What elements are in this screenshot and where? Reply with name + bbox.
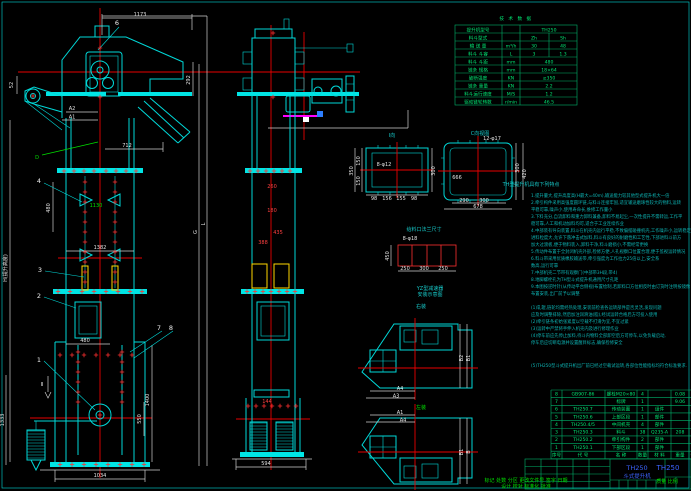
bom-cell: Q235-A [651,430,669,436]
tech-data-table: 技 术 数 据 提升机型号TH250料斗型式ZhSh输 送 量m³/h3048料… [455,15,577,105]
bom-cell: 38 [640,430,646,436]
dim-550: 550 [137,414,143,424]
dim-p2-b: B [466,450,472,454]
dim-480-boot: 480 [80,338,90,344]
bolt-mark [120,360,124,364]
bom-cell: 1 [641,399,644,405]
tech-label: 输 送 量 [470,42,487,49]
bom-cell: TH250.4/5 [570,422,595,428]
bolt-marks-and-hatches [27,31,298,467]
bom-cell: 5 [555,414,558,420]
dim-top-width: 1173 [134,12,147,18]
dim-f1-150b: 150 [356,176,362,186]
dim-f1-150a: 150 [356,156,362,166]
bom-cell: 部件 [655,444,665,451]
dim-a2: A2 [69,106,76,112]
tech-label: 料斗 斗容 [468,50,488,57]
bom-cell: 牵引构件 [612,436,631,443]
bom-cell: 中间机壳 [612,421,631,428]
bom-cell: 6 [555,407,558,413]
bom-cell: 标牌 [616,398,626,405]
bom-header-cell: 名 称 [616,452,627,459]
bolt-mark [76,350,80,354]
dim-1400: 1400 [145,394,151,407]
feed-450: 450 [385,251,391,261]
feature-line: 进料粒度大,允许下落冲击式加料,料斗有良好的耐磨性和工艺性,下部进料斗前方 [531,234,682,241]
bom-header-cell: 代 号 [578,452,589,459]
tech-unit: L [510,51,513,57]
bolt-mark [70,353,74,357]
tech-value: TH250 [540,27,556,33]
bolt-mark [58,353,62,357]
tech-unit: m³/h [506,43,517,49]
bolt-mark [83,260,87,264]
bolt-mark [113,270,117,274]
dim-1130: 1130 [90,203,103,209]
bom-cell: TH250.1 [572,445,592,451]
balloon-4: 4 [37,177,41,185]
dim-height-label: H(提升高度) [2,254,9,282]
dim-p2-a4: A4 [400,418,407,424]
bom-cell: 部件 [655,436,665,443]
tech-value-2: Sh [560,35,566,41]
dim-f2-290: 290 [459,198,469,204]
left-mount-label: 左装 [416,404,426,411]
balloon-8: 8 [169,324,173,332]
bolt-mark [254,404,258,408]
bolt-mark [76,360,80,364]
detail-c-holes: 12-φ17 [483,136,501,142]
bolt-mark [286,404,290,408]
bolt-mark [113,230,117,234]
bolt-mark [83,220,87,224]
dim-1382: 1382 [94,245,107,251]
bom-cell: 部件 [655,413,665,420]
tech-value-1: 30 [531,43,537,49]
side-elevation-view: 594 260 180 435 388 144 [232,19,408,470]
dim-p2-a1: A1 [397,410,404,416]
front-view-dimensions: 1173 712 52 292 A2 A1 480 1130 1382 H(提升… [0,12,207,482]
bolt-mark [76,400,80,404]
feature-line: 1.提升量大,提升高度高(H最大=40m),输送能力较其他型式提升机大一倍 [531,192,670,199]
bolt-mark [83,280,87,284]
tech-value-2: 1.3 [559,51,566,57]
dim-f1-b1: 98 [371,196,377,202]
title-sig-row2: 设计 校对 标准化 批准 [501,483,551,490]
bom-header-cell: 序号 [552,452,562,459]
detail-view-i: I向 8-φ12 98 156 155 98 300 150 150 350 [349,132,437,202]
bom-cell: TH250.2 [572,437,592,443]
tech-value: 2.2 [545,83,552,89]
bolt-mark [98,413,102,417]
bom-cell: TH250.6 [572,414,592,420]
bolt-mark [113,260,117,264]
bom-cell: 4 [641,391,644,397]
title-product-model: TH250 [625,464,647,472]
tech-label: 料斗 斗距 [468,58,488,65]
bolt-mark [82,353,86,357]
bolt-mark [113,240,117,244]
drive-note-2: 安装示意图 [417,291,442,298]
bom-cell: TH250.3 [572,430,592,436]
tech-value: 1.2 [545,91,552,97]
title-drawing-no: TH250 [656,464,680,472]
feature-line: 应及时调整排除,然后加注润滑油(脂),经试运转合格后方可投入使用 [531,311,657,318]
tech-value: 46.5 [544,99,554,105]
dim-p1-a3: A3 [393,394,400,400]
dim-p1-a4: A4 [397,386,404,392]
bolt-mark [113,280,117,284]
bom-cell: 1 [641,414,644,420]
dim-388: 388 [258,240,268,246]
title-sig-row1: 标记 处数 分区 更改文件号 签字 日期 [485,477,568,484]
feature-line: (3)运转中严禁将手伸入机壳内及进行修理作业 [531,325,619,332]
tech-table-title: 技 术 数 据 [499,15,532,22]
detail-view-c: C向视图 12-φ17 666 290 300 678 300 420 [438,130,528,210]
dim-f1-b4: 98 [411,196,417,202]
feed-title: 给料口法兰尺寸 [406,226,441,233]
cad-canvas: 1173 712 52 292 A2 A1 480 1130 1382 H(提升… [0,0,691,491]
feature-line: 稳可靠,人工和机动加料均可,适合于工业连续作业 [531,220,625,227]
detail-i-holes: 8-φ12 [377,162,392,168]
dim-f1-350: 350 [349,166,355,176]
dim-f1-b2: 156 [382,196,392,202]
tech-label: 驱动链轮转数 [464,98,492,105]
feature-line: 平稳可靠,噪声小,使用寿命长,维修工作量小 [531,206,613,213]
tech-unit: KN [508,75,514,81]
tech-value-2: 48 [560,43,566,49]
bom-cell: 1 [641,445,644,451]
bolt-mark [83,180,87,184]
bom-header-cell: 材 料 [654,452,665,459]
balloon-1: 1 [37,356,41,364]
bom-cell: 传动装置 [612,406,631,413]
bom-cell: 料斗 [616,429,626,436]
tech-label: 提升机型号 [467,26,490,33]
dim-letter-g: G [193,230,199,234]
bolt-mark [113,200,117,204]
balloon-7: 7 [157,324,161,332]
tech-unit: mm [507,68,516,73]
bom-cell: 部件 [655,421,665,428]
bom-table: 8GB907-86螺栓M20×8040.087标牌19.066TH250.7传动… [551,390,691,459]
bolt-mark [76,370,80,374]
tech-unit: r/min [505,99,517,105]
bom-cell: 4 [641,422,644,428]
head-plan-left-mount: A1 A4 B1 B [358,404,478,490]
feature-line: 数高,运行可靠 [531,262,559,269]
dim-f2-678: 678 [473,204,483,210]
bolt-mark [76,390,80,394]
tech-value: ≥350 [543,75,556,81]
dim-f1-b3: 155 [396,196,406,202]
bom-cell: 0.08 [675,391,685,397]
bom-cell: 8 [555,391,558,397]
tech-unit: M/S [507,91,516,97]
bom-cell: 上部区段 [612,413,631,420]
bom-cell: 9.06 [675,399,685,405]
feed-b1: 250 [400,266,410,272]
dim-260: 260 [267,184,277,190]
tech-unit: KN [508,83,514,89]
dim-52: 52 [9,82,15,88]
drive-note-1: YZ型减速器 [416,285,443,292]
bolt-mark [120,390,124,394]
features-text-block: TH型提升机具有下列特点 1.提升量大,提升高度高(H最大=40m),输送能力较… [502,181,691,369]
bolt-mark [113,180,117,184]
dim-292: 292 [186,75,192,85]
white-marker [303,117,309,122]
detail-i-title: I向 [389,132,395,139]
feature-line: 停车后应切断电源并设置醒目标志,确保检修安全 [531,339,623,346]
feature-line: (1)轧辊,链轮均需经热处理,安装前检查各运转部件是否灵活,发现问题 [531,304,662,311]
balloon-6: 6 [115,19,119,27]
bom-cell: 1 [641,407,644,413]
drive-marker [317,111,323,117]
bolt-mark [120,400,124,404]
tech-label: 链条 重量 [468,82,488,89]
balloon-2: 2 [37,292,41,300]
dim-f1-300: 300 [431,166,437,176]
dim-letter-l: L [201,222,207,225]
tech-value-1: Zh [531,35,537,41]
bolt-mark [94,353,98,357]
bolt-mark [106,353,110,357]
drive-notes: YZ型减速器 安装示意图 右装 左装 [416,285,443,411]
dim-chute: 712 [122,143,132,149]
bolt-mark [76,380,80,384]
feature-line: 8.地脚螺栓孔为TH型斗式提升机通用尺寸孔距 [531,276,619,283]
bom-cell: GB907-86 [572,391,595,397]
dim-a1: A1 [69,115,76,121]
bom-header-cell: 数量 [638,452,648,459]
right-mount-label: 右装 [416,303,426,310]
tech-label: 破断强度 [469,74,488,81]
bom-header-cell: 重量 [675,452,685,459]
bolt-mark [83,270,87,274]
dim-p1-b1: B1 [466,355,472,362]
feature-line: 布置安装,出厂前予以调整 [531,290,580,297]
bom-cell: 螺栓M20×80 [607,390,636,397]
title-product-name: 斗式提升机 [623,472,651,480]
bom-cell: 3 [555,430,558,436]
bolt-mark [278,404,282,408]
tech-unit: mm [507,60,516,65]
dim-594: 594 [261,461,271,467]
bolt-mark [120,350,124,354]
tech-label: 料斗运行速度 [464,90,492,97]
tech-value: 480 [545,59,554,65]
bom-cell: 208 [676,430,685,436]
feed-b3: 250 [438,266,448,272]
dim-1333: 1333 [0,414,6,427]
head-plan-right-mount: A4 A3 B2 B1 [358,318,478,400]
feature-line: 9.本图按逆时针(从传动平台侧视)布置绘制,若卸料口方位相反时由订货时注明按镜像 [531,283,691,290]
bolt-mark [83,240,87,244]
bolt-mark [83,210,87,214]
dim-f2-666: 666 [452,175,462,181]
dim-base: 1034 [94,473,107,479]
feature-line: (4)停车前应先停止加料,待斗内物料全部卸空后方可停车,以免负载启动, [531,332,666,339]
title-right-small: 质量 比例 [656,478,678,485]
feature-line: 6.料斗带采用优质橡胶输送带,牵引强度为工作拉力25倍以上,安全系 [531,255,660,262]
features-title: TH型提升机具有下列特点 [502,181,560,188]
feature-line: 5.传动件布置于全封闭机壳外部,检修方便,人孔视察口位置合理,便于监视运转情况 [531,248,686,255]
bolt-mark [120,380,124,384]
feature-line: (2)牵引链条初始张紧度以空载不打滑为宜,不宜过紧 [531,318,629,325]
bom-cell: 组件 [655,406,665,413]
title-block: TH250 斗式提升机 TH250 标记 处数 分区 更改文件号 签字 日期 设… [485,459,691,490]
feature-line: 加大过渡板,便于物料装入,卸料干净,料斗磨损小,不需经常更换 [531,241,649,248]
bom-cell: 7 [555,399,558,405]
feature-line: (5)TH250型斗式提升机出厂前已经过空载试运转,各部位性能指标均符合标准要求… [531,362,687,369]
bom-cell: 2 [555,437,558,443]
section-marker: Ⅱ [41,382,43,388]
bolt-mark [83,200,87,204]
bom-cell: 2 [641,437,644,443]
bolt-mark [83,230,87,234]
tech-label: 料斗型式 [469,34,488,41]
dim-480-left: 480 [46,203,52,213]
tech-value: 18×64 [541,67,557,73]
bom-cell: 4 [555,422,558,428]
front-elevation-view [25,26,192,470]
bolt-mark [113,220,117,224]
feed-opening-detail: 给料口法兰尺寸 8-φ18 450 250 300 250 [385,226,456,272]
dim-435: 435 [273,230,283,236]
feature-line: 7.中部机壳二节带有观察门(中部带3H段,带4) [531,269,618,276]
feature-line: 3.下料充分,自流卸料和重力卸料兼备,卸料不易起尘,一次性提升不需转运,工作平 [531,213,683,220]
bolt-mark [113,190,117,194]
dim-p2-b1: B1 [459,449,465,456]
tech-label: 链条 规格 [468,66,488,73]
dim-f2-420: 420 [522,169,528,179]
balloon-d: D [35,155,39,161]
bom-cell: TH250.7 [572,407,592,413]
bolt-mark [271,31,275,35]
feed-b2: 300 [419,266,429,272]
feed-holes: 8-φ18 [403,236,418,242]
bom-cell: 1 [555,445,558,451]
dim-f2-r300: 300 [515,163,521,173]
bolt-mark [83,190,87,194]
bolt-mark [113,210,117,214]
dim-p1-b2: B2 [459,355,465,362]
bolt-mark [294,404,298,408]
dim-180: 180 [267,208,277,214]
tech-value-1: 3 [533,51,536,57]
feature-line: 4.中部装有导向装置,料斗在机壳内运行平稳,不致偏摆碰撞机壳,工作噪声小,运转稳… [531,227,691,234]
bolt-mark [120,370,124,374]
feature-line: 2.牵引构件采用高强度圆环链,与料斗连接牢固,适宜输送磨琢性较大的物料,运转 [531,199,682,206]
balloon-3: 3 [38,266,42,274]
bom-cell: 下部区段 [612,444,631,451]
